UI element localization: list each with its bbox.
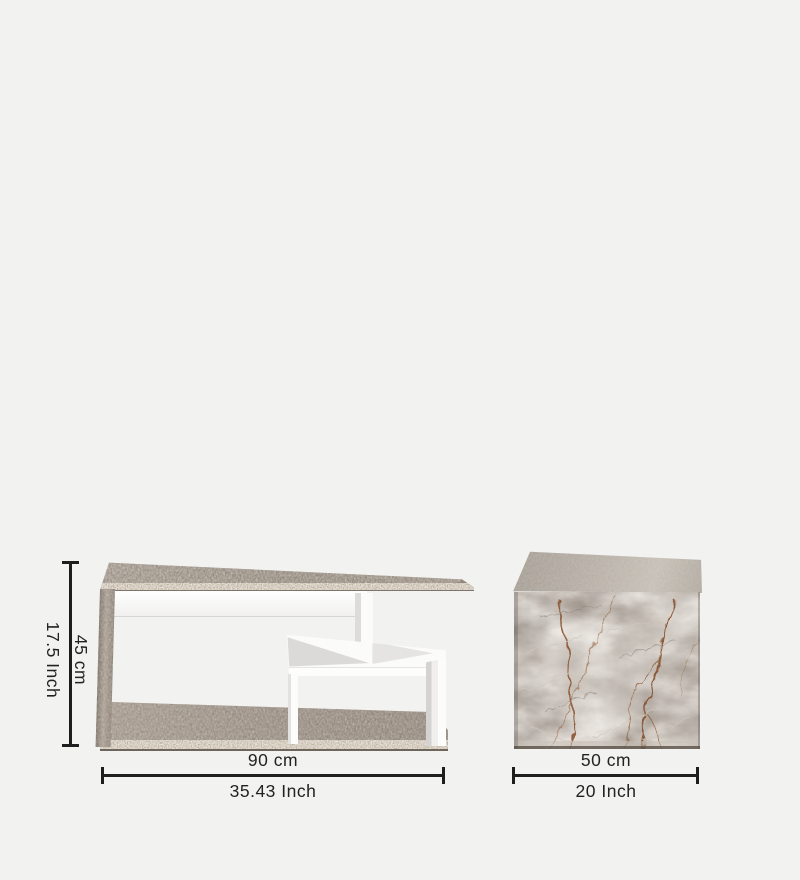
dimension-cap bbox=[101, 767, 104, 784]
coffee-table-top-panel bbox=[100, 562, 474, 591]
dimension-cap bbox=[442, 767, 445, 784]
height-inch-label: 17.5 Inch bbox=[43, 610, 63, 710]
dimension-cap bbox=[62, 561, 79, 564]
side-table-width-inch-label: 20 Inch bbox=[506, 781, 706, 801]
marble-side-table-image bbox=[512, 550, 702, 749]
coffee-table-top-edge bbox=[100, 583, 474, 591]
coffee-table-image bbox=[100, 562, 474, 751]
side-table-width-cm-label: 50 cm bbox=[506, 750, 706, 770]
side-table-bottom-shadow bbox=[514, 746, 700, 749]
dimension-cap bbox=[62, 744, 79, 747]
coffee-table-shelf-support bbox=[288, 674, 298, 744]
furniture-dimensions-figure: 45 cm 17.5 Inch 90 cm 35.43 Inch 50 cm 2… bbox=[0, 0, 800, 880]
table-width-cm-label: 90 cm bbox=[173, 750, 373, 770]
side-table-top-face bbox=[512, 550, 702, 593]
coffee-table-bottom-shelf bbox=[100, 701, 448, 751]
stone-grain-texture bbox=[512, 550, 702, 593]
side-table-front-face bbox=[514, 592, 700, 749]
table-width-inch-label: 35.43 Inch bbox=[173, 781, 373, 801]
table-width-dimension-line bbox=[102, 774, 444, 777]
edge-speckle-texture bbox=[100, 740, 448, 749]
side-table-right-edge-shade bbox=[698, 592, 700, 749]
shelf-front-edge bbox=[286, 667, 446, 676]
edge-speckle-texture bbox=[100, 583, 474, 590]
side-table-left-edge-shade bbox=[514, 592, 518, 749]
coffee-table-right-panel bbox=[426, 658, 446, 746]
side-table-width-dimension-line bbox=[513, 774, 699, 777]
coffee-table-drawer-front bbox=[114, 591, 367, 617]
marble-texture bbox=[514, 592, 700, 749]
height-cm-label: 45 cm bbox=[71, 610, 91, 710]
